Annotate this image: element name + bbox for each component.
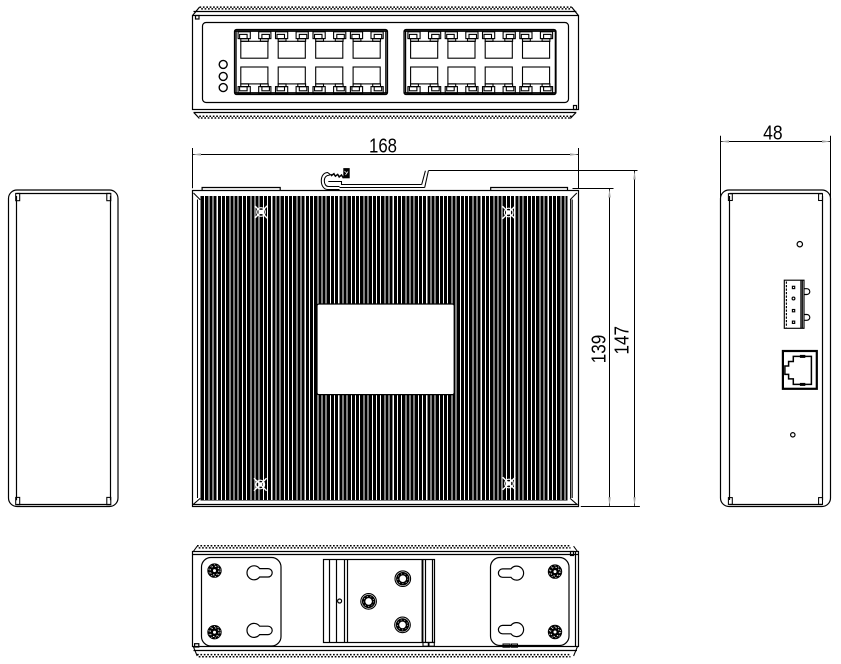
svg-text:139: 139 [588, 335, 611, 364]
svg-text:147: 147 [611, 326, 634, 355]
svg-text:48: 48 [763, 121, 783, 144]
svg-text:168: 168 [369, 134, 397, 157]
